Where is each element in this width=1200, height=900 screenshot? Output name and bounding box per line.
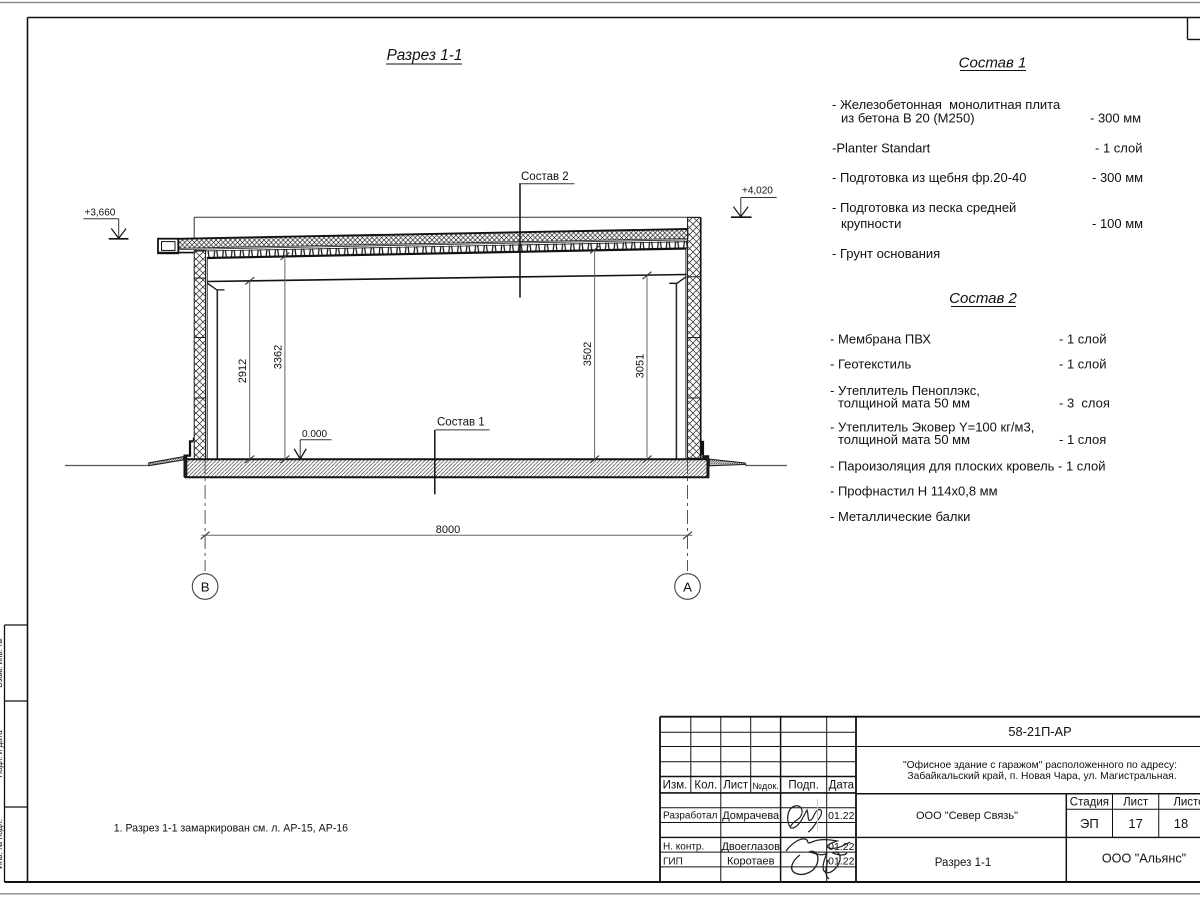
- svg-text:крупности: крупности: [841, 216, 901, 231]
- svg-text:ЭП: ЭП: [1080, 816, 1099, 831]
- svg-text:Состав 2: Состав 2: [949, 290, 1017, 307]
- svg-text:+4,020: +4,020: [742, 185, 773, 196]
- svg-text:Инв. № подл.: Инв. № подл.: [0, 819, 4, 869]
- svg-text:3051: 3051: [635, 354, 647, 378]
- svg-text:18: 18: [1174, 816, 1188, 831]
- svg-text:Двоеглазов: Двоеглазов: [721, 841, 780, 853]
- svg-text:ГИП: ГИП: [663, 856, 683, 867]
- svg-text:В: В: [201, 579, 210, 594]
- svg-text:Изм.: Изм.: [663, 780, 688, 792]
- svg-text:Домрачева: Домрачева: [722, 810, 780, 822]
- svg-text:- Металлические балки: - Металлические балки: [830, 509, 970, 524]
- svg-text:- Подготовка из щебня фр.20-40: - Подготовка из щебня фр.20-40: [832, 170, 1027, 185]
- svg-text:Разрез 1-1: Разрез 1-1: [935, 857, 991, 869]
- svg-text:3362: 3362: [272, 345, 284, 369]
- svg-text:- Профнастил Н 114х0,8 мм: - Профнастил Н 114х0,8 мм: [830, 483, 998, 498]
- svg-text:ООО "Альянс": ООО "Альянс": [1102, 852, 1186, 866]
- svg-text:- 1 слой: - 1 слой: [1059, 332, 1107, 347]
- svg-text:8000: 8000: [436, 524, 460, 536]
- svg-text:0.000: 0.000: [302, 429, 327, 440]
- svg-text:3502: 3502: [582, 342, 594, 366]
- svg-text:- 3 слоя: - 3 слоя: [1059, 396, 1110, 411]
- svg-text:-Planter Standart: -Planter Standart: [832, 140, 931, 155]
- svg-text:Состав 1: Состав 1: [959, 54, 1027, 71]
- svg-text:- 100 мм: - 100 мм: [1092, 216, 1143, 231]
- svg-text:- Геотекстиль: - Геотекстиль: [830, 357, 911, 372]
- svg-text:- 1 слой: - 1 слой: [1059, 357, 1107, 372]
- svg-text:17: 17: [1128, 816, 1142, 831]
- svg-text:- Пароизоляция для плоских кро: - Пароизоляция для плоских кровель: [830, 459, 1055, 474]
- svg-text:"Офисное здание с гаражом" рас: "Офисное здание с гаражом" расположенног…: [903, 759, 1177, 771]
- svg-text:Лист: Лист: [1123, 797, 1149, 809]
- svg-text:Подп.: Подп.: [788, 780, 819, 792]
- svg-text:Состав 2: Состав 2: [521, 171, 569, 183]
- svg-text:- Подготовка из песка средней: - Подготовка из песка средней: [832, 200, 1016, 215]
- svg-text:№док.: №док.: [752, 781, 778, 791]
- svg-text:А: А: [683, 579, 692, 594]
- svg-text:Состав 1: Состав 1: [437, 416, 485, 428]
- svg-text:- 1 слой: - 1 слой: [1095, 140, 1143, 155]
- svg-text:01.22: 01.22: [828, 856, 854, 868]
- svg-text:Стадия: Стадия: [1070, 797, 1109, 809]
- svg-text:58-21П-АР: 58-21П-АР: [1008, 724, 1071, 739]
- svg-text:Кол.: Кол.: [694, 780, 717, 792]
- svg-text:Забайкальский край, п. Новая Ч: Забайкальский край, п. Новая Чара, ул. М…: [907, 770, 1176, 782]
- svg-text:- 300 мм: - 300 мм: [1092, 170, 1143, 185]
- svg-text:01.22: 01.22: [828, 810, 854, 822]
- svg-text:Лист: Лист: [723, 780, 749, 792]
- svg-text:- 1 слой: - 1 слой: [1058, 459, 1106, 474]
- svg-text:Взам. инв. №: Взам. инв. №: [0, 638, 4, 688]
- svg-text:Н. контр.: Н. контр.: [663, 842, 704, 853]
- svg-text:ООО "Север Связь": ООО "Север Связь": [916, 810, 1018, 822]
- svg-text:- 300 мм: - 300 мм: [1090, 110, 1141, 125]
- svg-text:1. Разрез 1-1 замаркирован см.: 1. Разрез 1-1 замаркирован см. л. АР-15,…: [114, 823, 348, 835]
- svg-text:толщиной мата 50 мм: толщиной мата 50 мм: [838, 396, 970, 411]
- svg-text:Подп. и дата: Подп. и дата: [0, 730, 4, 778]
- svg-text:Коротаев: Коротаев: [727, 856, 775, 868]
- svg-text:- Грунт основания: - Грунт основания: [832, 246, 940, 261]
- svg-text:+3,660: +3,660: [85, 207, 116, 218]
- svg-text:Разработал: Разработал: [663, 810, 718, 822]
- svg-text:- Мембрана ПВХ: - Мембрана ПВХ: [830, 332, 931, 347]
- svg-text:2912: 2912: [237, 359, 249, 383]
- svg-text:Листов: Листов: [1173, 797, 1200, 809]
- svg-text:- 1 слоя: - 1 слоя: [1059, 432, 1106, 447]
- svg-text:Разрез 1-1: Разрез 1-1: [387, 47, 463, 64]
- svg-text:Дата: Дата: [829, 780, 855, 792]
- svg-text:толщиной мата 50 мм: толщиной мата 50 мм: [838, 432, 970, 447]
- svg-text:из бетона В 20 (М250): из бетона В 20 (М250): [841, 110, 975, 125]
